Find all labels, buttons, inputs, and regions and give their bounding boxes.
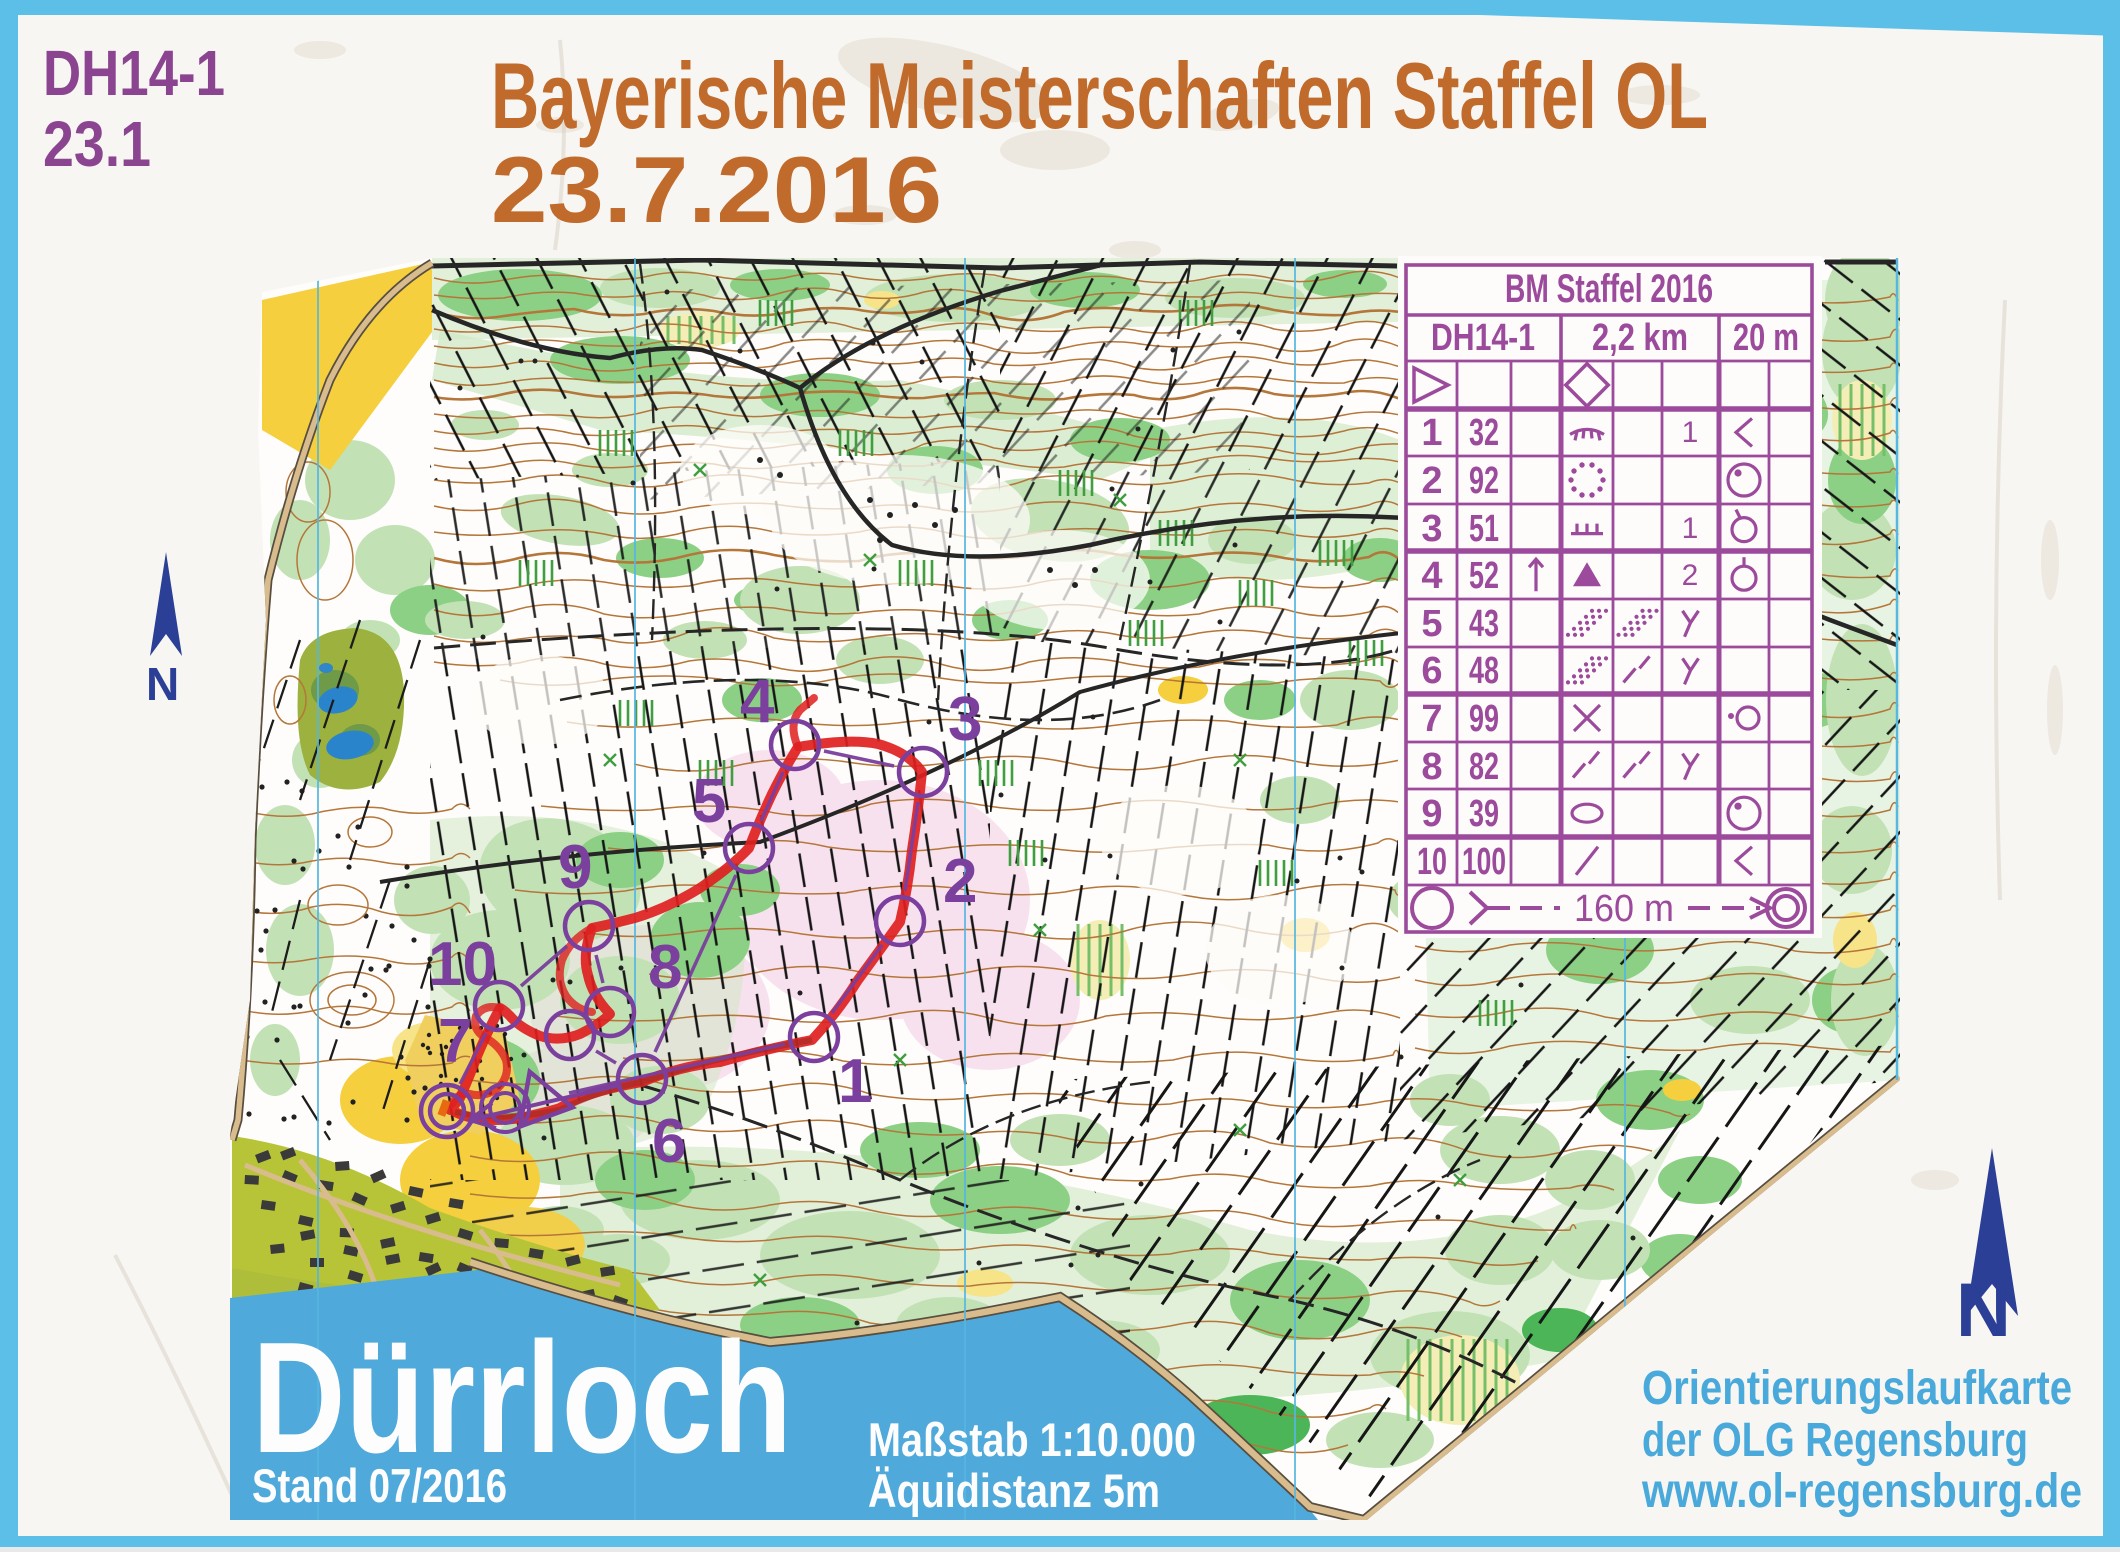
svg-text:1: 1 [1682,512,1699,545]
svg-text:8: 8 [1421,746,1442,788]
svg-text:5: 5 [1421,603,1442,645]
svg-text:3: 3 [948,685,982,754]
svg-text:Orientierungslaufkarte: Orientierungslaufkarte [1642,1362,2072,1415]
svg-text:www.ol-regensburg.de: www.ol-regensburg.de [1641,1465,2082,1518]
svg-text:3: 3 [1421,508,1442,550]
svg-text:9: 9 [1421,793,1442,835]
svg-text:48: 48 [1469,650,1499,692]
svg-text:1: 1 [838,1047,872,1116]
svg-text:23.7.2016: 23.7.2016 [491,137,942,242]
svg-text:N: N [146,658,179,710]
svg-text:51: 51 [1469,508,1499,550]
svg-text:32: 32 [1469,412,1499,454]
svg-text:Stand 07/2016: Stand 07/2016 [252,1459,507,1512]
svg-text:BM Staffel 2016: BM Staffel 2016 [1505,267,1713,311]
svg-text:160 m: 160 m [1574,888,1674,930]
svg-text:1: 1 [1682,416,1699,449]
svg-text:43: 43 [1469,603,1499,645]
svg-text:2,2 km: 2,2 km [1592,317,1688,359]
svg-text:8: 8 [648,933,682,1002]
svg-text:52: 52 [1469,555,1499,597]
svg-text:100: 100 [1462,841,1506,883]
svg-text:4: 4 [740,667,775,736]
svg-text:7: 7 [438,1007,472,1076]
svg-text:7: 7 [1421,698,1442,740]
svg-text:92: 92 [1469,460,1499,502]
svg-text:20 m: 20 m [1733,317,1799,359]
svg-text:6: 6 [652,1107,686,1176]
svg-text:4: 4 [1421,555,1442,597]
svg-text:23.1: 23.1 [43,108,151,180]
svg-text:DH14-1: DH14-1 [43,37,225,109]
svg-text:5: 5 [692,767,726,836]
svg-text:der OLG Regensburg: der OLG Regensburg [1642,1414,2028,1467]
svg-text:1: 1 [1421,412,1442,454]
svg-text:2: 2 [1421,460,1442,502]
svg-text:39: 39 [1469,793,1499,835]
svg-text:Bayerische Meisterschaften Sta: Bayerische Meisterschaften Staffel OL [491,43,1708,148]
svg-text:2: 2 [1682,559,1699,592]
svg-text:6: 6 [1421,650,1442,692]
svg-text:10: 10 [428,930,497,999]
svg-text:DH14-1: DH14-1 [1431,317,1535,359]
svg-text:Äquidistanz 5m: Äquidistanz 5m [868,1464,1160,1517]
svg-text:82: 82 [1469,746,1499,788]
svg-text:10: 10 [1417,841,1447,883]
svg-text:N: N [1956,1268,2011,1353]
svg-text:9: 9 [558,833,592,902]
svg-text:99: 99 [1469,698,1499,740]
svg-text:2: 2 [943,847,977,916]
svg-text:Maßstab 1:10.000: Maßstab 1:10.000 [868,1413,1196,1466]
